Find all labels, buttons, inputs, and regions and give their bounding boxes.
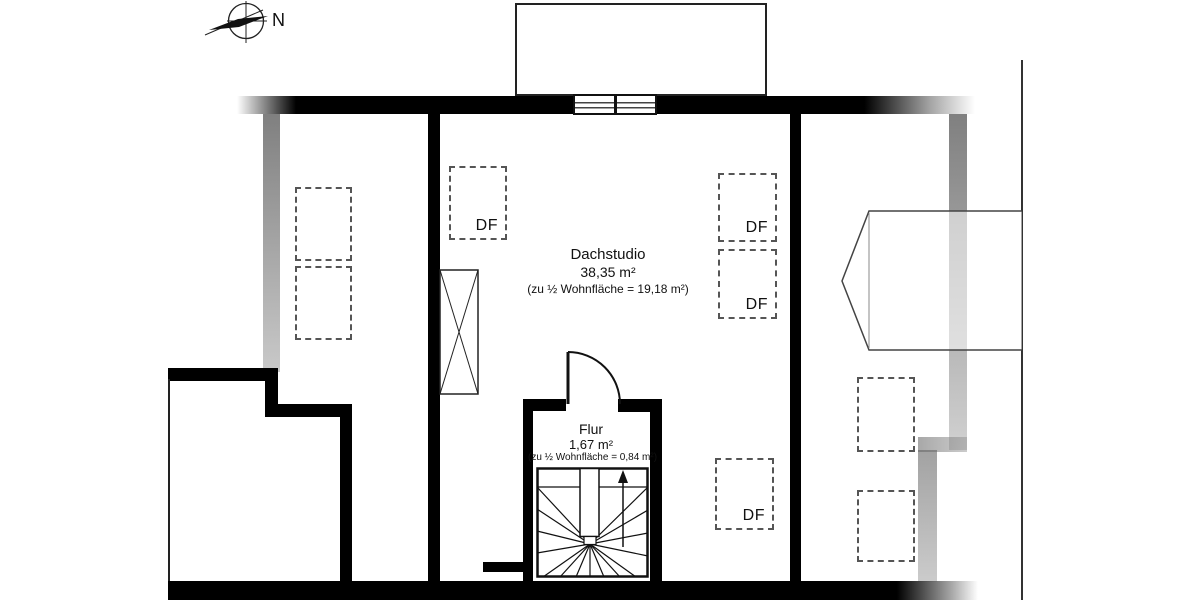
room-area: 1,67 m² bbox=[528, 437, 654, 452]
room-label-flur: Flur 1,67 m² (zu ½ Wohnfläche = 0,84 m²) bbox=[528, 421, 654, 464]
room-note: (zu ½ Wohnfläche = 19,18 m²) bbox=[498, 281, 718, 297]
compass-needle bbox=[209, 16, 268, 30]
room-note: (zu ½ Wohnfläche = 0,84 m²) bbox=[528, 452, 654, 464]
compass-north-label: N bbox=[272, 10, 285, 31]
room-area: 38,35 m² bbox=[498, 264, 718, 281]
compass-rose bbox=[0, 0, 1200, 600]
room-name: Dachstudio bbox=[498, 246, 718, 264]
room-label-dachstudio: Dachstudio 38,35 m² (zu ½ Wohnfläche = 1… bbox=[498, 246, 718, 297]
compass-north-text: N bbox=[272, 10, 285, 30]
floorplan-canvas: DF DF DF DF bbox=[0, 0, 1200, 600]
room-name: Flur bbox=[528, 421, 654, 437]
